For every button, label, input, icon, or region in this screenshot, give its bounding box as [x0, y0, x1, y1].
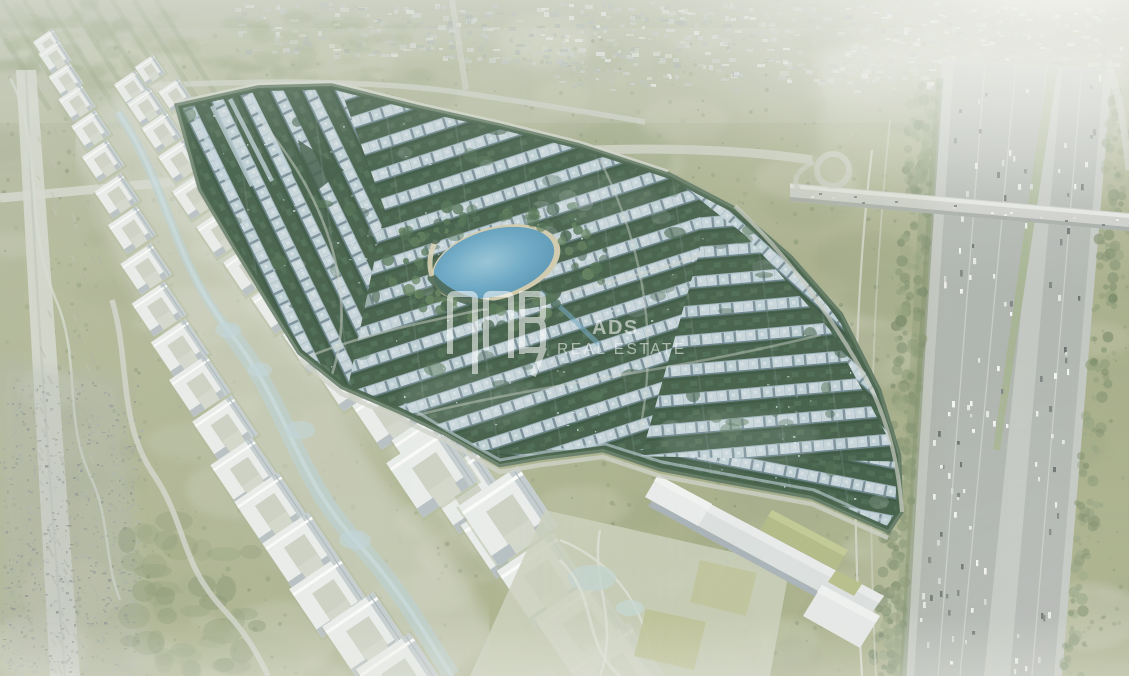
- svg-text:ADS: ADS: [592, 317, 639, 339]
- svg-text:REAL ESTATE: REAL ESTATE: [557, 341, 687, 358]
